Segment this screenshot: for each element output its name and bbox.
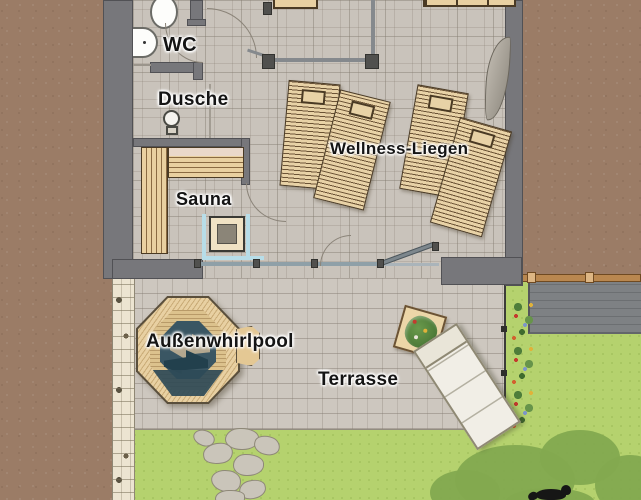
label-shower: Dusche	[158, 89, 228, 111]
gray-deck	[528, 282, 641, 334]
lounger-headrest	[469, 129, 496, 149]
label-sauna: Sauna	[176, 189, 232, 210]
entry-wall-post	[190, 0, 203, 21]
plant-flower	[423, 328, 428, 333]
wall-bottom-right	[441, 257, 522, 285]
facade-post	[311, 259, 318, 268]
ground-left-brown	[0, 0, 113, 500]
lounger-headrest	[428, 95, 454, 113]
stepping-stone	[215, 490, 245, 500]
sauna-bench-backrest	[169, 148, 243, 156]
flower-bed	[510, 298, 538, 430]
partition-post	[263, 2, 272, 15]
entry-wall-base	[187, 19, 206, 26]
label-terrace: Terrasse	[318, 369, 398, 391]
plant-flower	[414, 335, 419, 340]
facade-post	[432, 242, 439, 251]
sauna-wall-top	[133, 138, 250, 147]
shower-base	[166, 126, 178, 135]
bench-top-fragment	[273, 0, 318, 9]
wall-bottom-left	[112, 259, 203, 279]
sauna-heater	[217, 224, 237, 244]
wc-wall-stub	[193, 62, 203, 80]
sauna-glass-left	[202, 214, 206, 260]
shower-head	[163, 110, 180, 127]
sauna-glass-right	[246, 214, 250, 260]
rail-post	[585, 272, 594, 283]
ground-right-brown	[519, 0, 641, 280]
glass-facade	[197, 262, 383, 266]
facade-post	[194, 259, 201, 268]
floorplan-canvas: WC Dusche Sauna Wellness-Liegen Außenwhi…	[0, 0, 641, 500]
label-wc: WC	[163, 34, 197, 57]
sauna-bench-left	[141, 147, 168, 254]
glass-partition-vertical	[371, 0, 375, 58]
gravel-stone-strip	[112, 278, 135, 500]
partition-post	[262, 54, 275, 69]
stepping-stone	[233, 454, 264, 476]
partition-post	[365, 54, 379, 69]
lounger-headrest	[301, 89, 326, 105]
plant-flower	[412, 319, 417, 324]
fence-post	[501, 370, 507, 376]
facade-post	[253, 259, 260, 268]
basin-drain	[143, 41, 146, 44]
wall-left	[103, 0, 133, 279]
animal-silhouette	[561, 485, 571, 495]
lounger-headrest	[349, 101, 376, 120]
wc-door-threshold	[133, 64, 151, 66]
door-threshold	[381, 263, 439, 266]
facade-post	[377, 259, 384, 268]
shelf-top-fragment	[423, 0, 516, 7]
fence-post	[501, 326, 507, 332]
glass-partition-horizontal	[266, 58, 371, 62]
rail-post	[527, 272, 536, 283]
label-whirlpool: Außenwhirlpool	[146, 331, 294, 353]
label-loungers: Wellness-Liegen	[330, 139, 468, 159]
